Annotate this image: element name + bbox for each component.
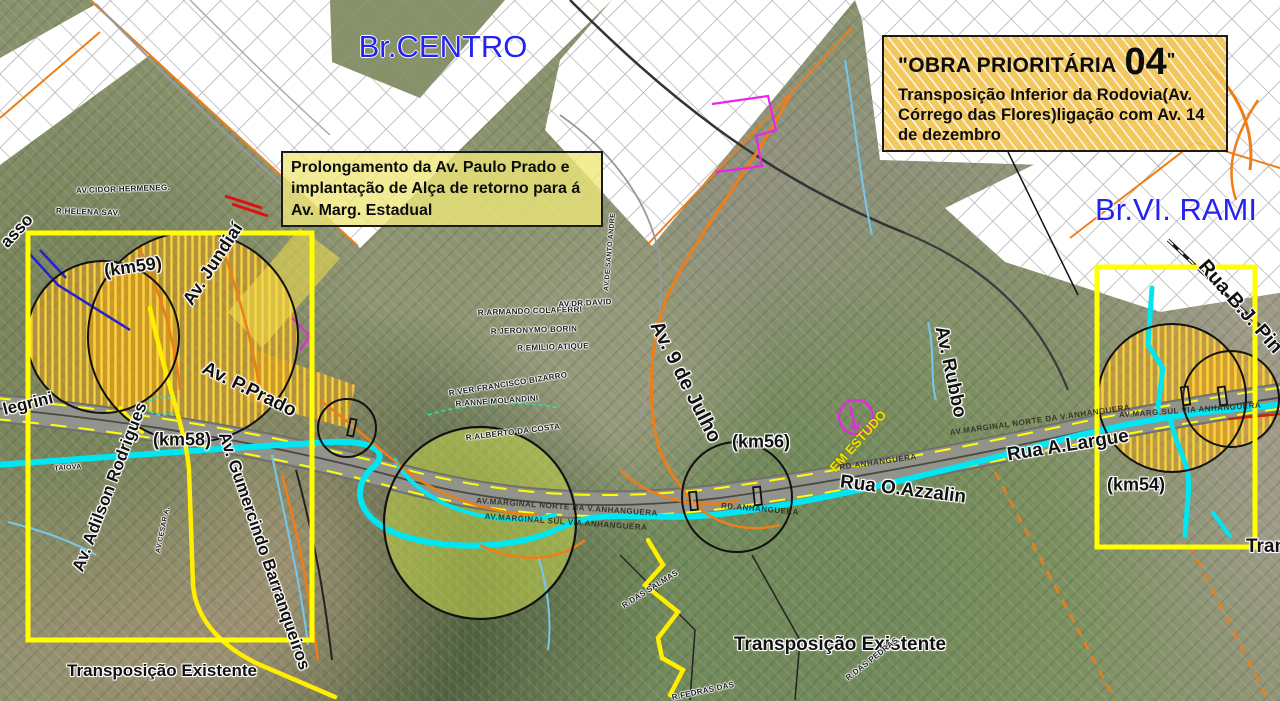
hwy-label-marginal-sul-right: AV.MARG.SUL VIA ANHANGUERA [1119, 401, 1262, 420]
road-label-av-9-de-julho: Av. 9 de Julho [644, 317, 725, 446]
obra-title-closing-quote: " [1167, 43, 1176, 69]
road-label-av-rubbo: Av. Rubbo [930, 324, 971, 419]
map-canvas[interactable]: Br.CENTROBr.VI. RAMIAv. Jundiaí(km59)(km… [0, 0, 1280, 701]
street-label-cidor-hermeneg: AV.CIDOR HERMENEG. [76, 183, 170, 195]
street-label-fedras: R.FEDRAS DAS [671, 680, 735, 701]
street-label-jeronymo: R.JERONYMO BORIN [491, 324, 578, 336]
obra-title: "OBRA PRIORITÁRIA [898, 43, 1116, 76]
km-marker-56: (km56) [732, 432, 790, 453]
street-label-salmas: R.DAS SALMAS [620, 568, 679, 610]
region-label-vila-rami: Br.VI. RAMI [1095, 192, 1257, 228]
street-label-anne-molandini: R.ANNE MOLANDINI [455, 394, 538, 409]
obra-description: Transposição Inferior da Rodovia(Av. Cór… [898, 86, 1214, 145]
obra-number: 04 [1124, 43, 1166, 81]
km-marker-58: (km58) [153, 430, 211, 451]
prolongamento-description: Prolongamento da Av. Paulo Prado e impla… [291, 157, 593, 221]
street-label-dr-david: AV.DR.DAVID [558, 297, 612, 309]
road-label-rua-bj-pin: Rua B.J. Pin [1193, 255, 1280, 358]
road-label-av-p-prado: Av. P.Prado [198, 358, 299, 423]
edge-label-asso: asso [0, 210, 38, 252]
note-transposicao-existente-left: Transposição Existente [67, 661, 257, 681]
road-label-rua-o-azzalin: Rua O.Azzalin [839, 471, 967, 508]
hwy-label-rd-anhanguera-2: RD.ANHANGUERA [721, 501, 800, 517]
edge-label-legrini: legrini [1, 388, 55, 420]
street-label-taiova: TAIOVA [54, 464, 82, 473]
km-marker-59: (km59) [103, 253, 163, 282]
road-label-av-jundiai: Av. Jundiaí [179, 219, 248, 309]
road-label-av-adilson-rodrigues: Av. Adilson Rodrigues [68, 399, 151, 574]
street-label-alberto-costa: R.ALBERTO DA COSTA [465, 422, 560, 443]
region-label-centro: Br.CENTRO [359, 29, 528, 65]
street-label-francisco-bizarro: R.VER.FRANCISCO BIZARRO [448, 370, 568, 398]
street-label-av-santo-andre: AV.DE SANTO ANDRE [603, 213, 617, 292]
callout-obra-04: "OBRA PRIORITÁRIA 04 " Transposição Infe… [882, 35, 1228, 152]
km-marker-54: (km54) [1107, 475, 1165, 496]
street-label-helena: R.HELENA SAV. [56, 206, 120, 217]
note-transposicao-right-clipped: Tran [1246, 536, 1280, 558]
obra-title-row: "OBRA PRIORITÁRIA 04 " [898, 43, 1214, 81]
callout-prolongamento: Prolongamento da Av. Paulo Prado e impla… [281, 151, 603, 227]
road-label-av-gumercindo-barranqueiros: Av. Gumercindo Barranqueiros [214, 429, 314, 672]
street-label-av-cesar: AV.CESAR A. [155, 506, 172, 553]
road-label-rua-a-largue: Rua A.Largue [1006, 426, 1131, 467]
street-label-emilio-atique: R.EMILIO ATIQUE [517, 341, 589, 352]
note-transposicao-existente-center: Transposição Existente [734, 634, 946, 656]
